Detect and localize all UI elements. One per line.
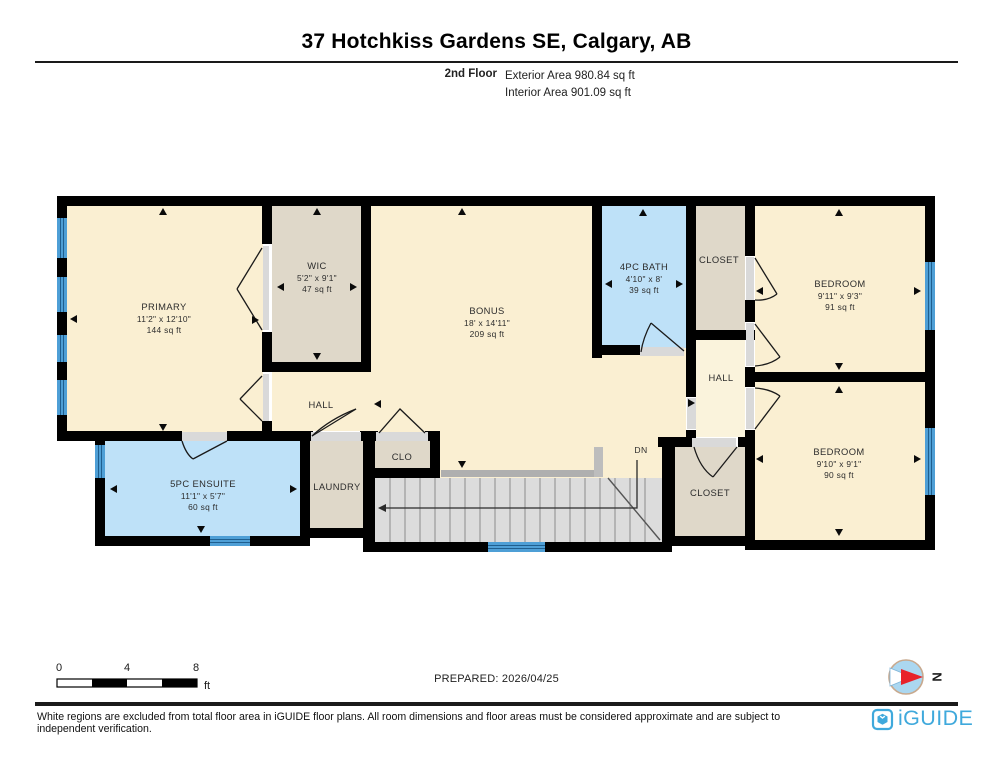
label-stairs-dn: DN bbox=[634, 445, 647, 455]
stairs-body bbox=[375, 478, 662, 542]
svg-text:144 sq ft: 144 sq ft bbox=[147, 325, 182, 335]
window bbox=[488, 542, 545, 552]
svg-text:PRIMARY: PRIMARY bbox=[141, 301, 187, 312]
iguide-logo-text: iGUIDE bbox=[898, 706, 973, 731]
window bbox=[925, 262, 935, 330]
svg-text:9'10" x 9'1": 9'10" x 9'1" bbox=[817, 459, 862, 469]
svg-text:4PC BATH: 4PC BATH bbox=[620, 261, 668, 272]
svg-text:BEDROOM: BEDROOM bbox=[814, 278, 865, 289]
room-closet-top bbox=[696, 206, 745, 330]
svg-text:5'2" x 9'1": 5'2" x 9'1" bbox=[297, 273, 337, 283]
window bbox=[210, 536, 250, 546]
svg-text:11'1" x 5'7": 11'1" x 5'7" bbox=[181, 491, 225, 501]
window bbox=[57, 277, 67, 312]
window bbox=[57, 380, 67, 415]
label-closet-bottom: CLOSET bbox=[690, 487, 730, 498]
svg-text:WIC: WIC bbox=[307, 260, 326, 271]
room-bedroom-top bbox=[755, 206, 925, 372]
svg-text:91 sq ft: 91 sq ft bbox=[825, 302, 855, 312]
label-laundry: LAUNDRY bbox=[313, 481, 361, 492]
prepared-date: PREPARED: 2026/04/25 bbox=[0, 673, 993, 685]
svg-text:90 sq ft: 90 sq ft bbox=[824, 470, 854, 480]
svg-text:209 sq ft: 209 sq ft bbox=[470, 329, 505, 339]
svg-text:4'10" x 8': 4'10" x 8' bbox=[626, 274, 663, 284]
label-hall-left: HALL bbox=[308, 399, 333, 410]
window bbox=[57, 218, 67, 258]
svg-text:9'11" x 9'3": 9'11" x 9'3" bbox=[818, 291, 862, 301]
stair-newel-post bbox=[594, 447, 603, 477]
svg-text:BEDROOM: BEDROOM bbox=[813, 446, 864, 457]
iguide-logo-icon bbox=[871, 707, 895, 731]
label-clo: CLO bbox=[392, 451, 412, 462]
svg-text:11'2" x 12'10": 11'2" x 12'10" bbox=[137, 314, 191, 324]
svg-text:60 sq ft: 60 sq ft bbox=[188, 502, 218, 512]
label-closet-top: CLOSET bbox=[699, 254, 739, 265]
svg-text:18' x 14'11": 18' x 14'11" bbox=[464, 318, 510, 328]
iguide-logo: iGUIDE bbox=[871, 706, 973, 731]
svg-text:5PC ENSUITE: 5PC ENSUITE bbox=[170, 478, 236, 489]
footer-divider bbox=[35, 702, 958, 706]
label-bonus: BONUS 18' x 14'11" 209 sq ft bbox=[464, 305, 510, 339]
window bbox=[95, 445, 105, 478]
svg-text:39 sq ft: 39 sq ft bbox=[629, 285, 659, 295]
floorplan-page: 37 Hotchkiss Gardens SE, Calgary, AB 2nd… bbox=[0, 0, 993, 768]
svg-text:47 sq ft: 47 sq ft bbox=[302, 284, 332, 294]
footer-disclaimer: White regions are excluded from total fl… bbox=[37, 711, 797, 735]
window bbox=[925, 428, 935, 495]
window bbox=[57, 335, 67, 362]
room-hall-right bbox=[696, 340, 745, 437]
label-hall-right: HALL bbox=[708, 372, 733, 383]
stair-railing bbox=[441, 470, 597, 477]
floorplan-drawing: PRIMARY 11'2" x 12'10" 144 sq ft WIC 5'2… bbox=[0, 0, 993, 768]
svg-text:BONUS: BONUS bbox=[469, 305, 504, 316]
